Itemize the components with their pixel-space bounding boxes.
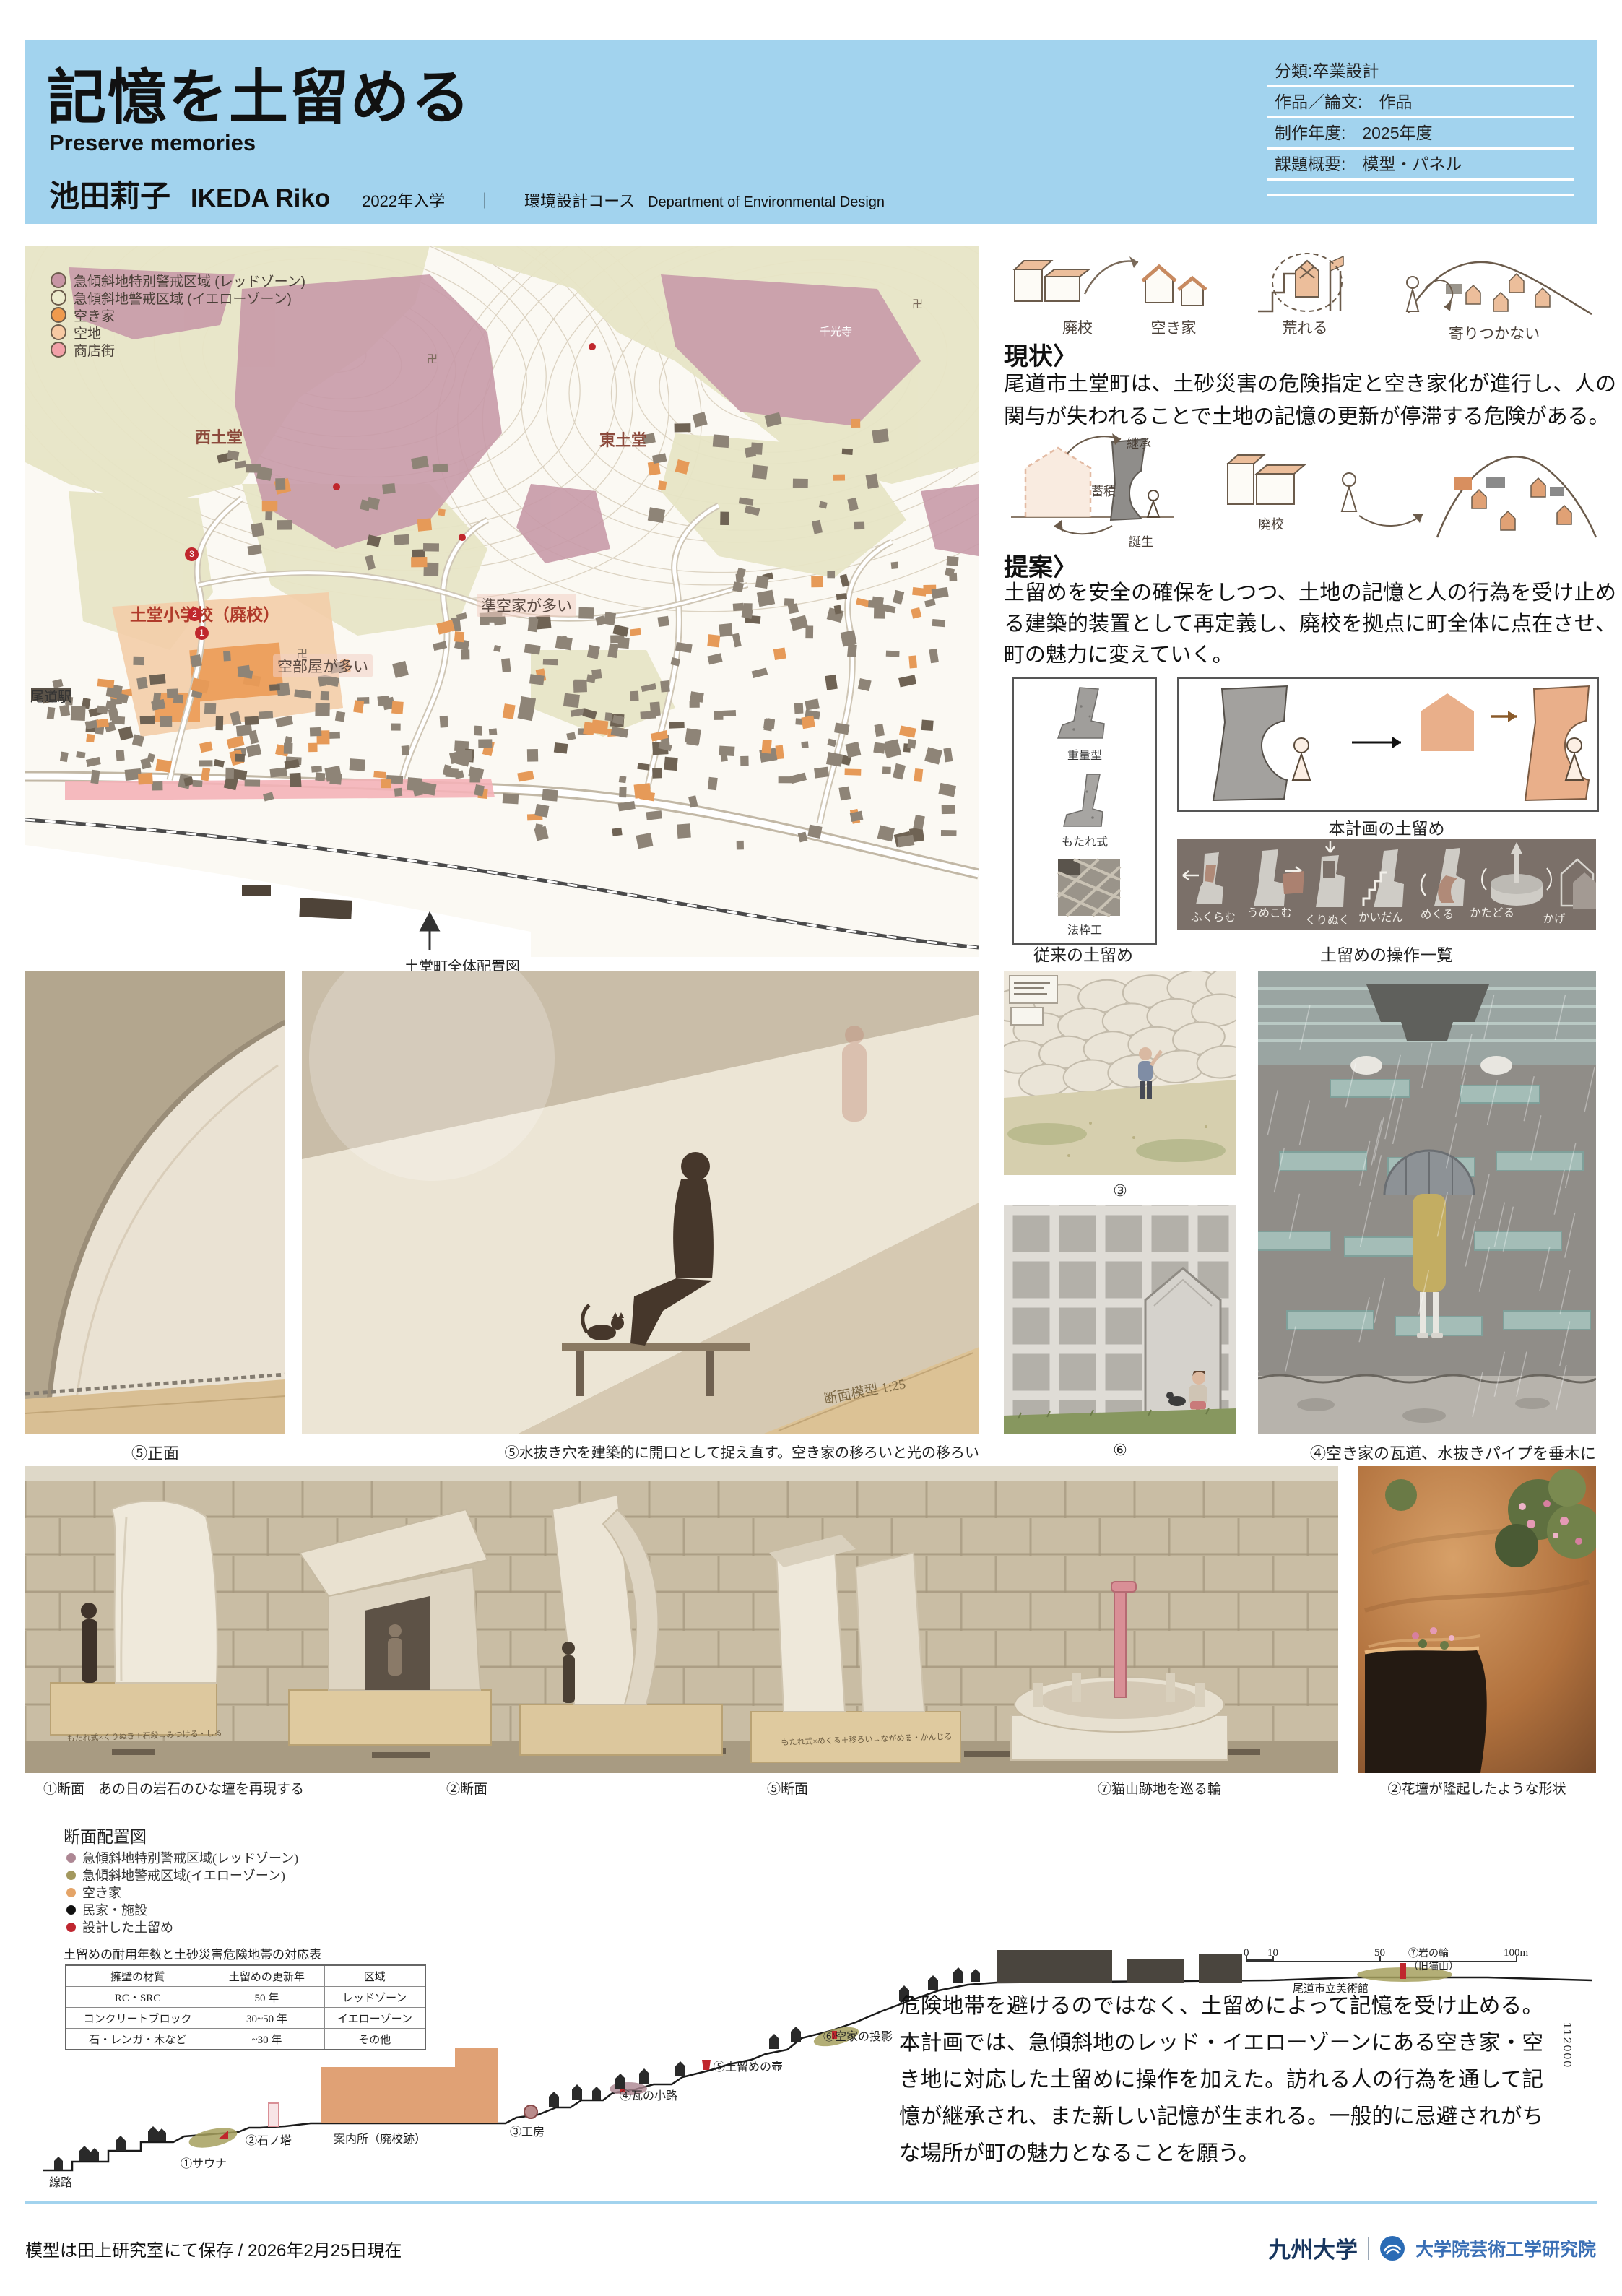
secdot-vacant <box>66 1888 76 1897</box>
seclegend-label: 急傾斜地警戒区域(イエローゾーン) <box>82 1866 285 1884</box>
plan-wall-box <box>1177 677 1599 812</box>
photo-render-outdoor <box>1004 971 1236 1175</box>
wall-type-gravity: 重量型 <box>1023 685 1146 763</box>
map-label-east: 東土堂 <box>599 428 647 451</box>
legend-label: 空き家 <box>74 306 115 325</box>
legend-dot-vacant-lot <box>51 324 66 340</box>
frame-wall-photo <box>1023 858 1146 919</box>
label-rail: 線路 <box>49 2172 72 2190</box>
scale-10: 10 <box>1267 1947 1278 1959</box>
caption-front: ⑤正面 <box>25 1441 285 1464</box>
svg-text:卍: 卍 <box>912 298 923 311</box>
leaning-wall-shape <box>1023 771 1146 831</box>
icon-label-decay: 荒れる <box>1283 316 1328 338</box>
side-note: 112000 <box>1560 2022 1573 2068</box>
icon-label-vacant-house: 空き家 <box>1151 316 1197 338</box>
op-label-mold: かたどる <box>1470 904 1514 920</box>
caption-b1: ①断面 あの日の岩石のひな壇を再現する <box>43 1778 304 1798</box>
scale-50: 50 <box>1374 1947 1385 1959</box>
op-label-embed: うめこむ <box>1247 904 1292 920</box>
wall-type-label: 重量型 <box>1067 745 1102 763</box>
footer-note: 模型は田上研究室にて保存 / 2026年2月25日現在 <box>25 2236 402 2261</box>
photo-front-model <box>25 971 285 1434</box>
legend-dot-shopping <box>51 342 66 358</box>
photo-render-waffle-wall <box>1004 1205 1236 1434</box>
meta-row-category: 分類:卒業設計 <box>1267 56 1574 87</box>
author-row: 池田莉子 IKEDA Riko 2022年入学 ｜ 環境設計コース Depart… <box>49 172 885 216</box>
current-heading: 現状〉 <box>1004 337 1077 372</box>
label-info-center: 案内所（廃校跡） <box>334 2129 426 2146</box>
label-pot: ⑤土留めの壺 <box>714 2057 783 2074</box>
legend-label: 急傾斜地警戒区域 (イエローゾーン) <box>74 288 292 308</box>
page-title: 記憶を土留める <box>47 49 472 135</box>
label-stone-tower: ②石ノ塔 <box>246 2131 292 2148</box>
section-title: 断面配置図 <box>64 1823 147 1847</box>
label-projection: ⑥空家の投影 <box>823 2027 893 2044</box>
seclegend-label: 急傾斜地特別警戒区域(レッドゾーン) <box>82 1848 298 1867</box>
op-label-bulge: ふくらむ <box>1191 909 1236 924</box>
wall-type-frame: 法枠工 <box>1023 858 1146 937</box>
plan-wall-diagram <box>1179 679 1595 807</box>
map-legend: 急傾斜地特別警戒区域 (レッドゾーン) 急傾斜地警戒区域 (イエローゾーン) 空… <box>51 272 305 358</box>
secdot-red-zone <box>66 1853 76 1863</box>
page-subtitle: Preserve memories <box>49 130 256 156</box>
conclusion-body: 危険地帯を避けるのではなく、土留めによって記憶を受け止める。本計画では、急傾斜地… <box>899 1988 1543 2172</box>
op-label-shadow: かげ <box>1543 910 1565 926</box>
current-state-icons <box>1004 249 1597 316</box>
legend-label: 商店街 <box>74 340 115 360</box>
photo-render-rain <box>1258 971 1596 1434</box>
photo-rock-garden <box>1358 1466 1596 1773</box>
op-label-stairs: かいだん <box>1358 909 1403 924</box>
cycle-label-accumulate: 蓄積 <box>1091 481 1116 499</box>
legend-dot-vacant-house <box>51 307 66 323</box>
caption-b2: ②断面 <box>446 1778 487 1798</box>
caption-tile: ④空き家の瓦道、水抜きパイプを垂木に <box>1258 1441 1596 1464</box>
map-label-empty-rooms: 空部屋が多い <box>273 654 373 677</box>
map-label-temple: 千光寺 <box>820 324 852 339</box>
label-tile-path: ④瓦の小路 <box>620 2086 677 2103</box>
map-label-school: 土堂小学校（廃校） <box>130 601 279 625</box>
caption-rock: ②花壇が隆起したような形状 <box>1358 1778 1596 1798</box>
caption-b3: ⑤断面 <box>767 1778 808 1798</box>
conventional-walls-box: 重量型 もたれ式 法枠工 <box>1012 677 1157 945</box>
course-en: Department of Environmental Design <box>648 194 885 211</box>
label-workshop: ③工房 <box>510 2122 545 2139</box>
secdot-yellow-zone <box>66 1871 76 1880</box>
cycle-label-birth: 誕生 <box>1129 532 1153 550</box>
legend-dot-red-zone <box>51 272 66 288</box>
current-body: 尾道市土堂町は、土砂災害の危険指定と空き家化が進行し、人の関与が失われることで土… <box>1004 368 1616 433</box>
footer-brand: 九州大学 大学院芸術工学研究院 <box>1268 2232 1596 2264</box>
map-marker-3: 3 <box>185 547 199 561</box>
meta-row-year: 制作年度: 2025年度 <box>1267 118 1574 150</box>
author-name-jp: 池田莉子 <box>49 172 170 216</box>
meta-row-blank <box>1267 181 1574 196</box>
graduate-school-name: 大学院芸術工学研究院 <box>1415 2235 1596 2261</box>
label-sauna: ①サウナ <box>181 2154 227 2171</box>
map-marker-2: 2 <box>188 607 201 621</box>
label-rock-ring-2: （旧猫山） <box>1408 1959 1459 1973</box>
cycle-label-inherit: 継承 <box>1127 433 1151 451</box>
op-label-peel: めくる <box>1421 906 1454 922</box>
wall-type-label: もたれ式 <box>1062 832 1108 849</box>
meta-row-worktype: 作品／論文: 作品 <box>1267 87 1574 118</box>
scale-100: 100m <box>1504 1947 1528 1959</box>
operations-caption: 土留めの操作一覧 <box>1177 941 1596 966</box>
poster-page: 記憶を土留める Preserve memories 池田莉子 IKEDA Rik… <box>0 0 1622 2296</box>
map-marker-1: 1 <box>195 626 209 640</box>
map-label-semi-vacant: 準空家が多い <box>477 594 576 617</box>
conventional-walls-caption: 従来の土留め <box>1012 941 1154 966</box>
secdot-houses <box>66 1905 76 1915</box>
separator: ｜ <box>477 189 493 212</box>
gravity-wall-shape <box>1023 685 1146 744</box>
seclegend-label: 空き家 <box>82 1883 121 1902</box>
footer-divider <box>25 2201 1597 2204</box>
map-label-station: 尾道駅 <box>30 686 71 706</box>
plan-wall-caption: 本計画の土留め <box>1177 815 1596 839</box>
admission-year: 2022年入学 <box>362 189 445 212</box>
svg-text:卍: 卍 <box>427 353 438 365</box>
icon-label-school2: 廃校 <box>1258 514 1284 533</box>
seclegend-label: 民家・施設 <box>82 1900 147 1919</box>
photo-opening-model <box>302 971 979 1434</box>
label-rock-ring-1: ⑦岩の輪 <box>1408 1946 1449 1960</box>
author-name-en: IKEDA Riko <box>191 184 330 213</box>
caption-b4: ⑦猫山跡地を巡る輪 <box>1098 1778 1221 1798</box>
caption-drain: ⑤水抜き穴を建築的に開口として捉え直す。空き家の移ろいと光の移ろい <box>302 1441 979 1462</box>
map-label-west: 西土堂 <box>195 425 243 448</box>
icon-label-closed-school: 廃校 <box>1062 316 1093 338</box>
caption-3: ③ <box>1004 1182 1236 1200</box>
op-label-carve: くりぬく <box>1305 911 1350 927</box>
legend-label: 急傾斜地特別警戒区域 (レッドゾーン) <box>74 271 305 290</box>
meta-table: 分類:卒業設計 作品／論文: 作品 制作年度: 2025年度 課題概要: 模型・… <box>1267 56 1574 196</box>
scale-0: 0 <box>1244 1947 1249 1959</box>
icon-label-avoided: 寄りつかない <box>1449 322 1540 344</box>
university-name: 九州大学 <box>1268 2232 1358 2264</box>
wall-type-label: 法枠工 <box>1067 920 1102 937</box>
course-jp: 環境設計コース <box>524 189 635 212</box>
legend-dot-yellow-zone <box>51 290 66 306</box>
footer-separator <box>1368 2237 1369 2260</box>
university-logo <box>1379 2235 1405 2261</box>
wall-type-leaning: もたれ式 <box>1023 771 1146 849</box>
proposal-body: 土留めを安全の確保をしつつ、土地の記憶と人の行為を受け止める建築的装置として再定… <box>1004 578 1616 671</box>
meta-row-format: 課題概要: 模型・パネル <box>1267 150 1574 181</box>
caption-6: ⑥ <box>1004 1441 1236 1460</box>
legend-label: 空地 <box>74 323 101 342</box>
